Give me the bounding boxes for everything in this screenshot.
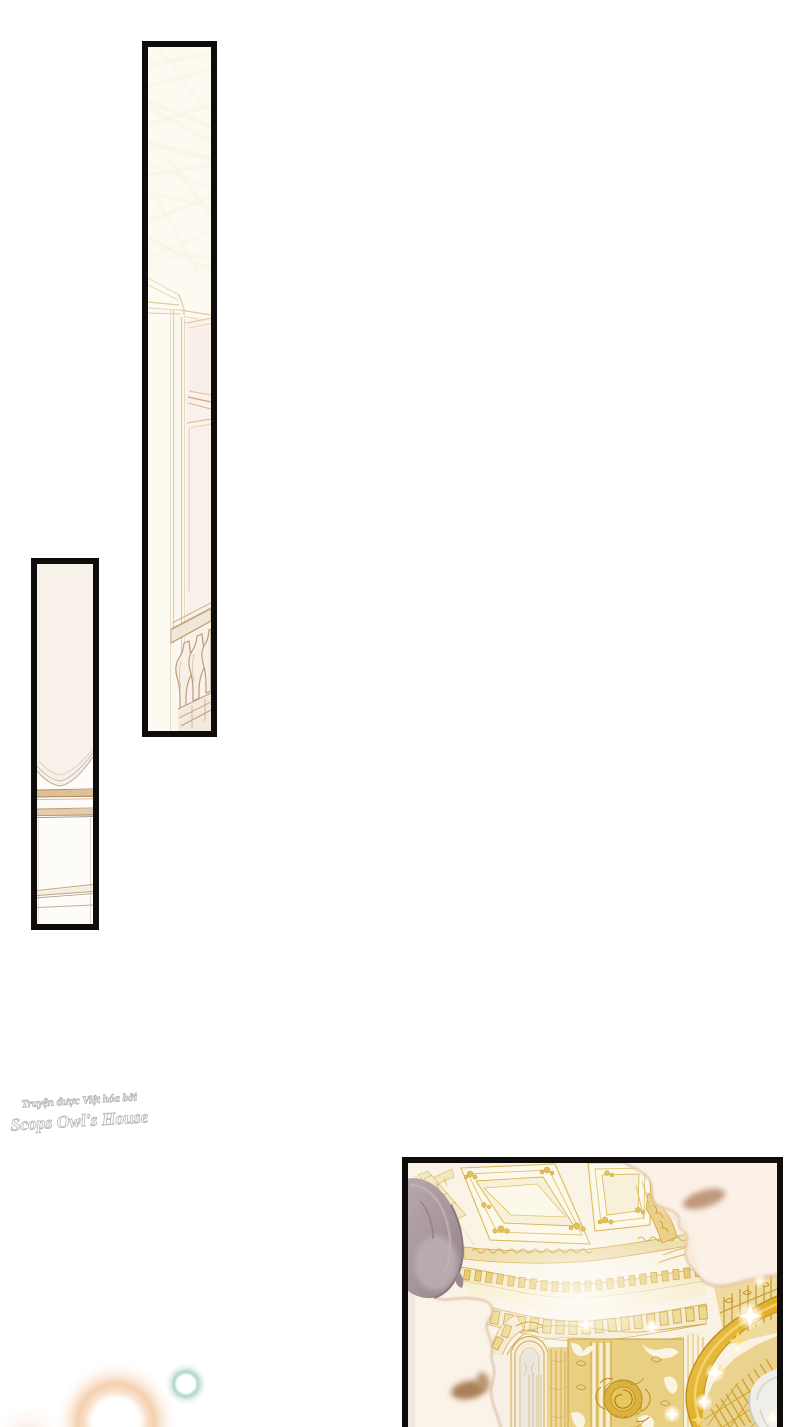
svg-text:Scops Owl's House: Scops Owl's House: [10, 1106, 149, 1134]
